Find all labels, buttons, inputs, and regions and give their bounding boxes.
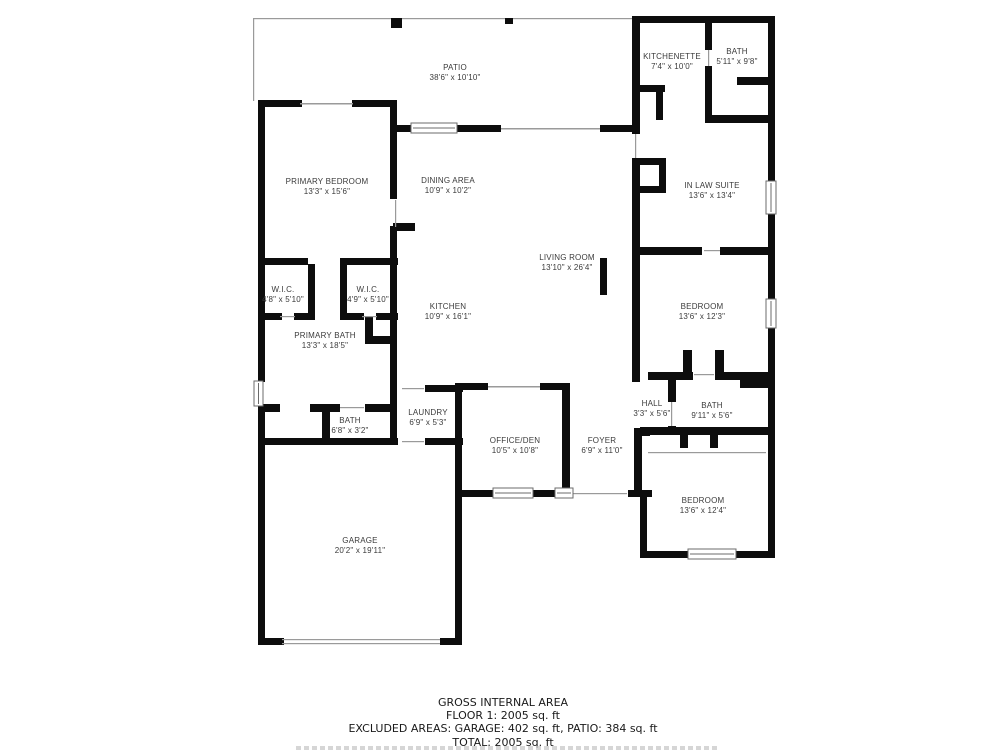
room-dims: 9'11" x 5'6" — [642, 411, 782, 421]
patio-outline — [253, 18, 633, 101]
room-dims: 13'6" x 12'4" — [633, 506, 773, 516]
floor1-area-line: FLOOR 1: 2005 sq. ft — [0, 709, 1000, 722]
room-label-foyer: FOYER 6'9" x 11'0" — [532, 436, 672, 455]
floorplan-drawing — [0, 0, 1000, 750]
room-dims: 10'9" x 10'2" — [378, 186, 518, 196]
room-name: BATH — [642, 401, 782, 411]
room-dims: 13'10" x 26'4" — [497, 263, 637, 273]
room-label-primary-bedroom: PRIMARY BEDROOM 13'3" x 15'6" — [257, 177, 397, 196]
room-label-primary-bath: PRIMARY BATH 13'3" x 18'5" — [255, 331, 395, 350]
room-name: PRIMARY BEDROOM — [257, 177, 397, 187]
room-dims: 10'9" x 16'1" — [378, 312, 518, 322]
room-dims: 5'11" x 9'8" — [667, 57, 807, 67]
room-dims: 13'6" x 13'4" — [642, 191, 782, 201]
room-name: PRIMARY BATH — [255, 331, 395, 341]
room-name: BEDROOM — [633, 496, 773, 506]
window-marker — [493, 488, 533, 498]
room-name: FOYER — [532, 436, 672, 446]
window-marker — [254, 381, 263, 406]
room-name: LAUNDRY — [358, 408, 498, 418]
room-name: BATH — [667, 47, 807, 57]
room-label-bedroom-middle: BEDROOM 13'6" x 12'3" — [632, 302, 772, 321]
cutoff-watermark — [296, 746, 720, 750]
room-label-kitchen: KITCHEN 10'9" x 16'1" — [378, 302, 518, 321]
room-dims: 6'9" x 11'0" — [532, 446, 672, 456]
window-marker — [411, 123, 457, 133]
room-label-garage: GARAGE 20'2" x 19'11" — [290, 536, 430, 555]
room-dims: 13'6" x 12'3" — [632, 312, 772, 322]
room-label-bath-upper: BATH 5'11" x 9'8" — [667, 47, 807, 66]
window-marker — [688, 549, 736, 559]
room-dims: 13'3" x 15'6" — [257, 187, 397, 197]
room-name: GARAGE — [290, 536, 430, 546]
room-dims: 6'9" x 5'3" — [358, 418, 498, 428]
room-name: DINING AREA — [378, 176, 518, 186]
room-name: BEDROOM — [632, 302, 772, 312]
room-label-living-room: LIVING ROOM 13'10" x 26'4" — [497, 253, 637, 272]
room-dims: 20'2" x 19'11" — [290, 546, 430, 556]
room-label-in-law-suite: IN LAW SUITE 13'6" x 13'4" — [642, 181, 782, 200]
room-name: PATIO — [385, 63, 525, 73]
area-summary: GROSS INTERNAL AREA FLOOR 1: 2005 sq. ft… — [0, 696, 1000, 749]
gross-internal-area-line: GROSS INTERNAL AREA — [0, 696, 1000, 709]
room-dims: 13'3" x 18'5" — [255, 341, 395, 351]
room-label-patio: PATIO 38'6" x 10'10" — [385, 63, 525, 82]
room-label-laundry: LAUNDRY 6'9" x 5'3" — [358, 408, 498, 427]
excluded-areas-line: EXCLUDED AREAS: GARAGE: 402 sq. ft, PATI… — [0, 722, 1000, 735]
room-name: KITCHEN — [378, 302, 518, 312]
room-name: IN LAW SUITE — [642, 181, 782, 191]
room-label-dining-area: DINING AREA 10'9" x 10'2" — [378, 176, 518, 195]
window-marker — [555, 488, 573, 498]
room-dims: 38'6" x 10'10" — [385, 73, 525, 83]
room-name: W.I.C. — [298, 285, 438, 295]
floorplan-page: PATIO 38'6" x 10'10" KITCHENETTE 7'4" x … — [0, 0, 1000, 750]
room-name: LIVING ROOM — [497, 253, 637, 263]
room-label-bedroom-lower: BEDROOM 13'6" x 12'4" — [633, 496, 773, 515]
room-label-bath-hall: BATH 9'11" x 5'6" — [642, 401, 782, 420]
